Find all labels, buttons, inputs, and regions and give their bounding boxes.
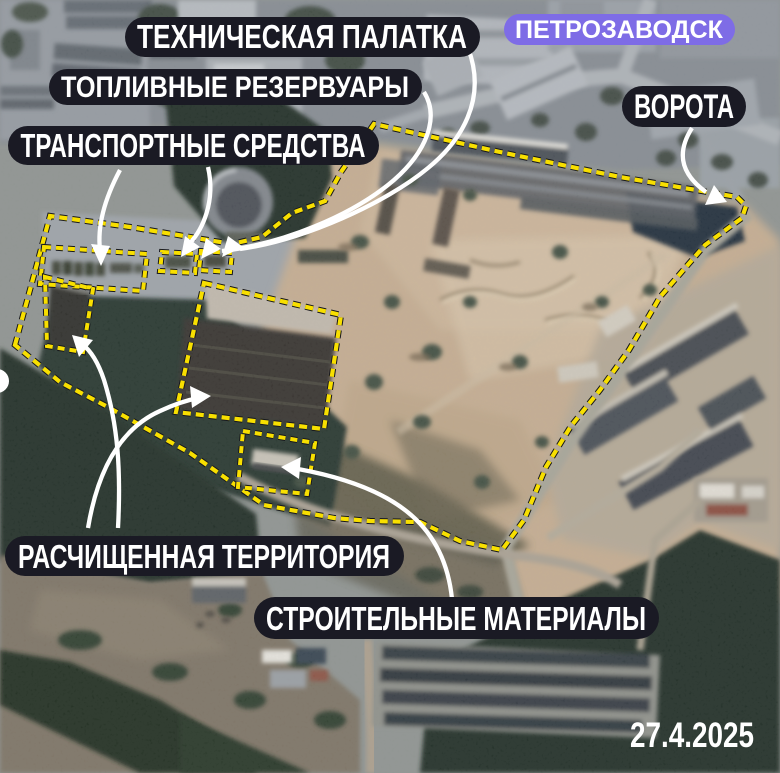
svg-text:ВОРОТА: ВОРОТА [634,88,734,126]
svg-text:ТРАНСПОРТНЫЕ СРЕДСТВА: ТРАНСПОРТНЫЕ СРЕДСТВА [21,127,366,164]
svg-text:ТЕХНИЧЕСКАЯ ПАЛАТКА: ТЕХНИЧЕСКАЯ ПАЛАТКА [137,18,467,55]
svg-text:СТРОИТЕЛЬНЫЕ МАТЕРИАЛЫ: СТРОИТЕЛЬНЫЕ МАТЕРИАЛЫ [266,600,646,637]
svg-text:ТОПЛИВНЫЕ РЕЗЕРВУАРЫ: ТОПЛИВНЫЕ РЕЗЕРВУАРЫ [61,71,409,104]
svg-text:РАСЧИЩЕННАЯ ТЕРРИТОРИЯ: РАСЧИЩЕННАЯ ТЕРРИТОРИЯ [18,538,390,575]
svg-text:27.4.2025: 27.4.2025 [630,716,754,755]
svg-text:ПЕТРОЗАВОДСК: ПЕТРОЗАВОДСК [515,16,724,44]
